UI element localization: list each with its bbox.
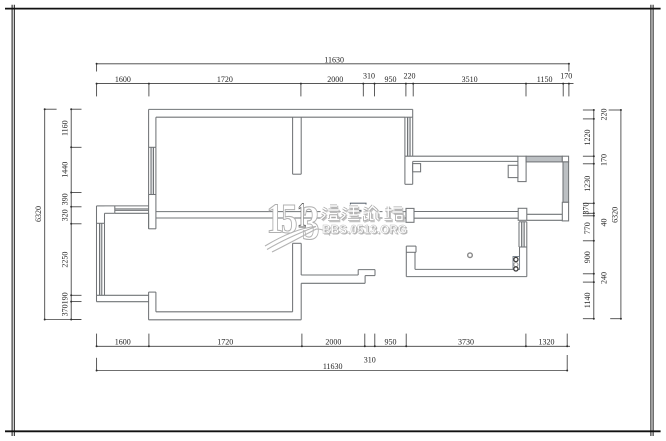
svg-text:1320: 1320 [539, 338, 555, 347]
svg-text:900: 900 [583, 251, 592, 263]
svg-text:370: 370 [61, 304, 70, 316]
svg-text:370: 370 [582, 203, 591, 215]
svg-text:1440: 1440 [61, 162, 70, 178]
svg-text:3: 3 [302, 195, 320, 250]
svg-text:1600: 1600 [115, 75, 131, 84]
svg-text:220: 220 [600, 109, 609, 121]
svg-text:1720: 1720 [217, 75, 233, 84]
svg-text:1140: 1140 [583, 293, 592, 309]
svg-text:11630: 11630 [324, 55, 344, 64]
svg-text:390: 390 [61, 193, 70, 205]
svg-text:170: 170 [560, 72, 572, 81]
svg-text:770: 770 [583, 222, 592, 234]
svg-text:190: 190 [61, 292, 70, 304]
svg-text:220: 220 [404, 72, 416, 81]
svg-text:320: 320 [61, 209, 70, 221]
svg-text:2000: 2000 [327, 75, 343, 84]
svg-text:3730: 3730 [458, 338, 474, 347]
svg-text:950: 950 [385, 75, 397, 84]
svg-text:310: 310 [364, 356, 376, 365]
svg-text:1160: 1160 [61, 120, 70, 136]
svg-text:1720: 1720 [217, 338, 233, 347]
svg-text:240: 240 [600, 272, 609, 284]
svg-text:2250: 2250 [61, 252, 70, 268]
svg-text:11630: 11630 [323, 362, 343, 371]
svg-text:950: 950 [385, 338, 397, 347]
svg-text:2000: 2000 [325, 338, 341, 347]
svg-text:1220: 1220 [583, 130, 592, 146]
svg-text:3510: 3510 [462, 75, 478, 84]
svg-text:6320: 6320 [34, 206, 43, 222]
svg-text:310: 310 [363, 72, 375, 81]
svg-text:170: 170 [600, 154, 609, 166]
svg-text:1600: 1600 [115, 338, 131, 347]
svg-text:1150: 1150 [537, 75, 553, 84]
svg-text:1230: 1230 [583, 176, 592, 192]
svg-text:40: 40 [600, 219, 609, 227]
svg-text:BBS.0513.ORG: BBS.0513.ORG [322, 224, 407, 236]
svg-text:6320: 6320 [610, 207, 619, 223]
